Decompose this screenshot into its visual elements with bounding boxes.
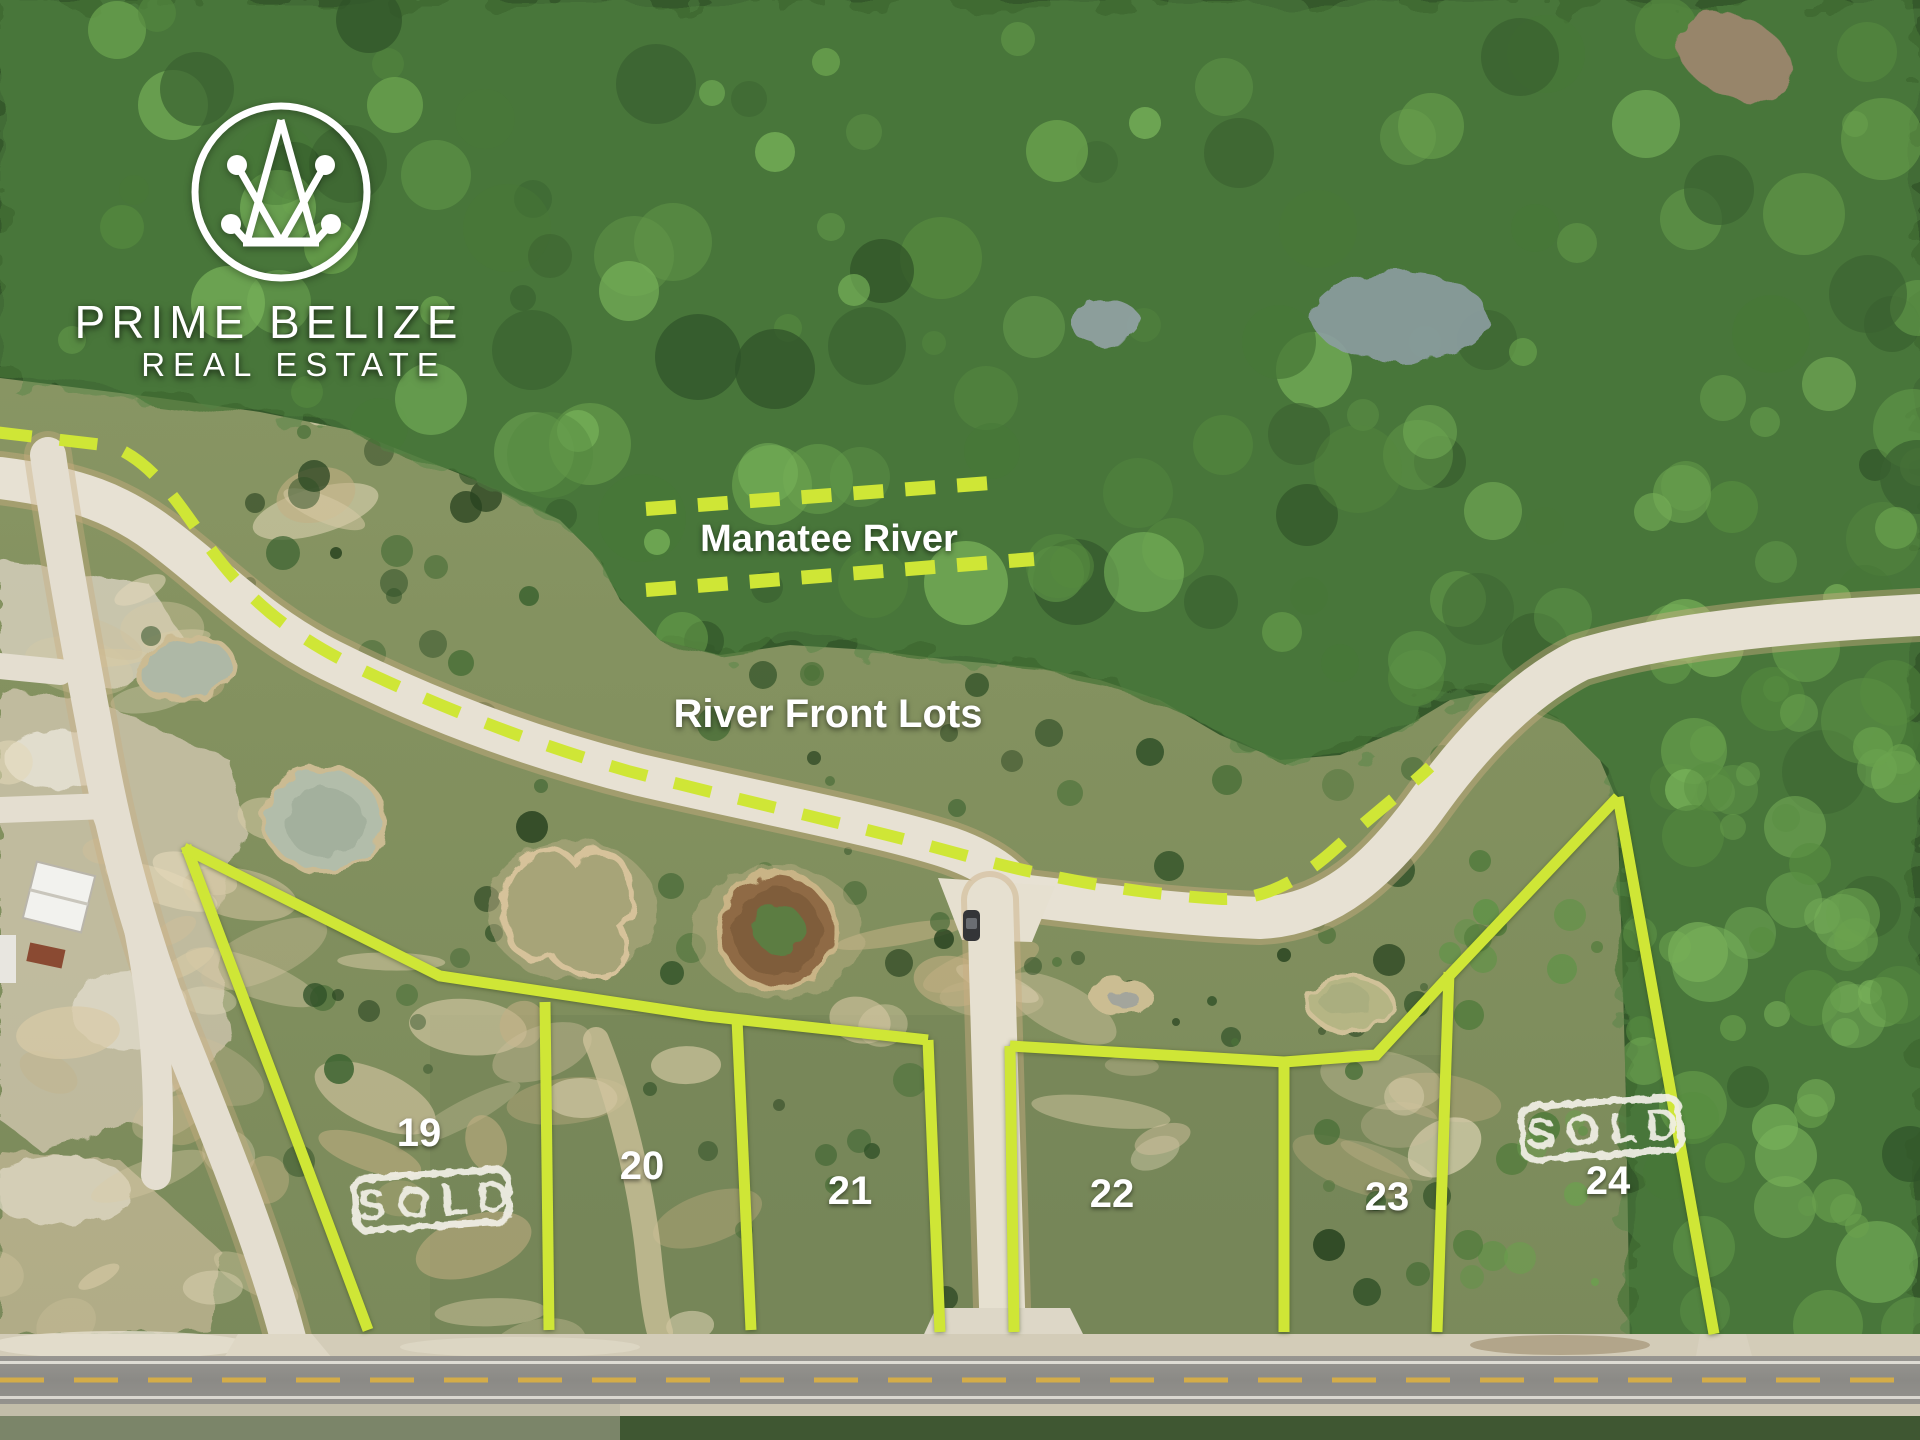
left-road-stub [0,666,60,672]
canopy-blob [1853,727,1893,767]
bush [698,1141,718,1161]
canopy-blob [1842,111,1868,137]
canopy-blob [455,89,515,149]
roadside-left-gravel [0,1404,620,1440]
lot-number-23: 23 [1365,1175,1410,1219]
bush [332,989,344,1001]
bush [1406,1262,1430,1286]
canopy-blob [846,114,882,150]
canopy-blob [1129,107,1161,139]
bush [380,569,408,597]
canopy-blob [731,81,767,117]
area-label: River Front Lots [674,692,983,736]
bush [1313,1229,1345,1261]
canopy-blob [1841,98,1920,180]
bush [749,661,777,689]
canopy-blob [1837,22,1897,82]
right-driveway [1696,1334,1752,1356]
lot-number-19: 19 [397,1111,442,1155]
canopy-blob [1700,375,1746,421]
canopy-blob [160,52,234,126]
canopy-blob [1003,296,1065,358]
bush [1373,944,1405,976]
bush [1136,738,1164,766]
lot-number-24: 24 [1586,1159,1631,1203]
canopy-blob [1720,1015,1746,1041]
edge-line-bottom [0,1396,1920,1399]
bush [1469,850,1491,872]
lot-number-21: 21 [828,1169,873,1213]
bush [1453,1230,1483,1260]
bush [516,811,548,843]
sold-stamp-lot-24: SOLD [1520,1096,1689,1160]
forest-pond [1069,300,1141,344]
pond-inner [284,788,364,856]
pond-inner [1319,985,1371,1015]
canopy-blob [1812,1179,1856,1223]
bush [330,547,342,559]
bush [660,961,684,985]
bush [396,984,418,1006]
bush [288,477,320,509]
bush [1277,948,1291,962]
canopy-blob [1026,120,1088,182]
bush [266,536,300,570]
sold-stamp-lot-19: SOLD [353,1168,520,1231]
canopy-blob [1754,1176,1816,1238]
bush [893,1063,927,1097]
canopy-blob [828,307,906,385]
canopy-blob [1314,425,1402,513]
canopy-blob [1834,918,1878,962]
bush [297,425,311,439]
canopy-blob [510,285,536,311]
bush [324,1054,354,1084]
bush [807,751,821,765]
canopy-blob [1772,804,1800,832]
canopy-blob [507,412,593,498]
canopy-blob [1802,357,1856,411]
bush [1454,1000,1484,1030]
forest-pond [1312,272,1488,362]
canopy-blob [954,366,1018,430]
canopy-blob [1736,762,1760,786]
bush [419,630,447,658]
pond-butterfly [502,850,634,975]
canopy-blob [1464,482,1522,540]
canopy-blob [1204,118,1274,188]
canopy-blob [964,423,1020,479]
canopy-blob [599,261,659,321]
canopy-blob [1193,415,1253,475]
canopy-blob [838,274,870,306]
canopy-blob [1557,223,1597,263]
canopy-blob [1279,190,1357,268]
pond-sandy-water [1109,991,1139,1007]
canopy-blob [367,77,423,133]
canopy-blob [735,329,815,409]
bush [1564,1182,1588,1206]
river-name-label: Manatee River [700,518,958,560]
canopy-blob [372,48,404,80]
canopy-blob [1720,814,1746,840]
canopy-blob [100,205,144,249]
bush [1547,954,1577,984]
canopy-blob [1509,338,1537,366]
bush [1172,1018,1180,1026]
bush [885,949,913,977]
bush [1052,957,1062,967]
bush [773,1099,785,1111]
canopy-blob [644,529,670,555]
bush [930,912,950,932]
canopy-blob [1755,541,1797,583]
canopy-blob [1104,532,1184,612]
canopy-blob [1750,407,1780,437]
brand-name: PRIME BELIZE [75,296,464,348]
bush [423,1064,433,1074]
canopy-blob [1026,534,1090,598]
bush [424,555,448,579]
canopy-blob [817,213,845,241]
bush [519,586,539,606]
canopy-blob [1242,305,1316,379]
canopy-blob [1763,676,1789,702]
canopy-blob [1262,612,1302,652]
canopy-blob [922,331,946,355]
canopy-blob [1684,155,1754,225]
bush [643,1082,657,1096]
canopy-blob [1780,694,1818,732]
bush [1001,750,1023,772]
bush [815,1144,837,1166]
canopy-blob [1705,1143,1745,1183]
canopy-blob [1526,507,1564,545]
bush [1322,769,1354,801]
bush [658,873,684,899]
aerial-photo: Manatee River River Front Lots 19 20 21 … [0,0,1920,1440]
lot-19-20-boundary [545,1002,549,1330]
canopy-blob [900,217,982,299]
canopy-blob [1612,90,1680,158]
bush [948,799,966,817]
canopy-blob [88,1,146,59]
bush [1323,1180,1335,1192]
bush [1207,996,1217,1006]
canopy-blob [1668,922,1728,982]
bush [381,535,413,567]
canopy-blob [655,314,741,400]
bush [1024,957,1042,975]
bush [1591,941,1603,953]
canopy-blob [1321,644,1359,682]
bush [1591,1278,1599,1286]
bush [1318,1027,1326,1035]
bush [303,983,327,1007]
bush [534,779,548,793]
bush [864,1143,880,1159]
canopy-blob [1481,18,1559,96]
bush [800,662,824,686]
canopy-blob [812,48,840,76]
canopy-blob [1789,843,1831,885]
canopy-blob [1511,204,1559,252]
bush [1554,899,1586,931]
bush [1212,765,1242,795]
canopy-blob [1684,763,1732,811]
access-road [990,900,1003,1340]
bush [1231,1038,1239,1046]
lot-number-20: 20 [620,1144,665,1188]
bush [1504,1242,1536,1274]
canopy-blob [401,140,471,210]
bush [1314,1119,1340,1145]
canopy-blob [1380,109,1436,165]
bush [450,491,482,523]
canopy-blob [598,474,686,562]
small-structure [0,935,16,983]
bush [450,948,470,968]
canopy-blob [1763,173,1845,255]
bush [1460,1265,1484,1289]
bush [934,929,954,949]
bush [245,493,265,513]
bush [141,626,161,646]
canopy-blob [1662,805,1724,867]
canopy-blob [1001,22,1035,56]
pond-island [754,904,804,954]
canopy-blob [492,310,572,390]
canopy-blob [1290,577,1328,615]
canopy-blob [1195,58,1253,116]
bush [1154,851,1184,881]
brand-tagline: REAL ESTATE [141,346,447,383]
car [963,910,980,941]
canopy-blob [1388,631,1446,689]
bush [1035,719,1063,747]
bush [410,1014,426,1030]
canopy-blob [1875,507,1917,549]
canopy-blob [119,175,149,205]
canopy-blob [1184,575,1238,629]
bush [358,1000,380,1022]
bush [1420,983,1428,991]
canopy-blob [1706,481,1758,533]
bush [1353,1278,1381,1306]
canopy-blob [699,80,725,106]
bush [448,650,474,676]
lot-number-22: 22 [1090,1172,1135,1216]
bush [1345,1062,1363,1080]
bush [825,776,835,786]
canopy-blob [1829,255,1907,333]
canopy-blob [1797,1079,1835,1117]
canopy-blob [1403,405,1457,459]
canopy-blob [1732,295,1810,373]
canopy-blob [528,234,572,278]
aerial-scene: Manatee River River Front Lots 19 20 21 … [0,0,1920,1440]
bush [1071,951,1085,965]
canopy-blob [1442,573,1514,645]
canopy-blob [1727,1066,1769,1108]
edge-line-top [0,1361,1920,1364]
canopy-blob [616,44,696,124]
canopy-blob [1103,458,1173,528]
canopy-blob [1749,927,1775,953]
lot-22-west-boundary [1010,1046,1014,1332]
canopy-blob [755,132,795,172]
canopy-blob [1634,493,1672,531]
bush [1057,780,1083,806]
